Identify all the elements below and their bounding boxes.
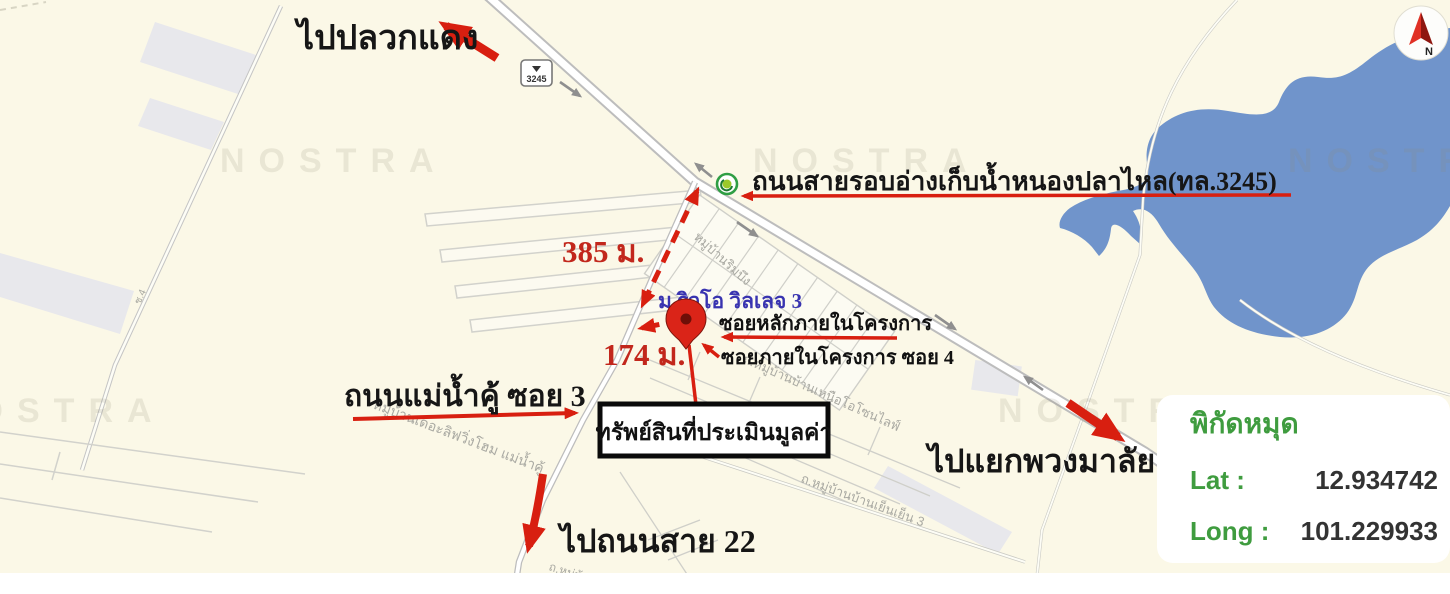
coordinates-panel: พิกัดหมุด Lat : 12.934742 Long : 101.229… bbox=[1157, 395, 1450, 563]
label-distance-385: 385 ม. bbox=[562, 234, 644, 269]
label-distance-174: 174 ม. bbox=[603, 337, 685, 372]
arrow-main-soi bbox=[724, 337, 897, 338]
label-main-soi: ซอยหลักภายในโครงการ bbox=[719, 311, 932, 335]
map-canvas: 3245 ช.4 หมู่บ้านริมบึง ถ.หมู่บ้านบ้านเห… bbox=[0, 0, 1450, 594]
label-inner-soi: ซอยภายในโครงการ ซอย 4 bbox=[721, 345, 954, 369]
bottom-margin bbox=[0, 573, 1450, 594]
watermark: NOSTRA bbox=[220, 142, 448, 180]
long-value: 101.229933 bbox=[1301, 516, 1438, 546]
lat-value: 12.934742 bbox=[1315, 465, 1438, 495]
label-property-box: ทรัพย์สินที่ประเมินมูลค่า bbox=[596, 415, 833, 447]
label-to-puang-malai: ไปแยกพวงมาลัย bbox=[925, 442, 1155, 479]
gas-station-icon bbox=[717, 174, 737, 194]
label-maenam-khu: ถนนแม่น้ำคู้ ซอย 3 bbox=[344, 373, 586, 415]
appraisal-location-map: 3245 ช.4 หมู่บ้านริมบึง ถ.หมู่บ้านบ้านเห… bbox=[0, 0, 1450, 594]
property-box: ทรัพย์สินที่ประเมินมูลค่า bbox=[596, 404, 833, 456]
route-shield-3245: 3245 bbox=[521, 60, 552, 86]
long-label: Long : bbox=[1190, 516, 1269, 546]
compass-north-icon: N bbox=[1394, 6, 1448, 60]
coordinates-title: พิกัดหมุด bbox=[1190, 408, 1299, 441]
label-ring-road: ถนนสายรอบอ่างเก็บน้ำหนองปลาไหล(ทล.3245) bbox=[752, 161, 1277, 196]
label-to-road-22: ไปถนนสาย 22 bbox=[557, 522, 756, 559]
watermark: NOSTRA bbox=[0, 392, 166, 430]
label-to-pluak-daeng: ไปปลวกแดง bbox=[294, 17, 478, 57]
watermark: NOSTRA bbox=[1288, 142, 1450, 180]
svg-text:3245: 3245 bbox=[526, 74, 546, 84]
lat-label: Lat : bbox=[1190, 465, 1245, 495]
compass-n-letter: N bbox=[1425, 46, 1433, 58]
